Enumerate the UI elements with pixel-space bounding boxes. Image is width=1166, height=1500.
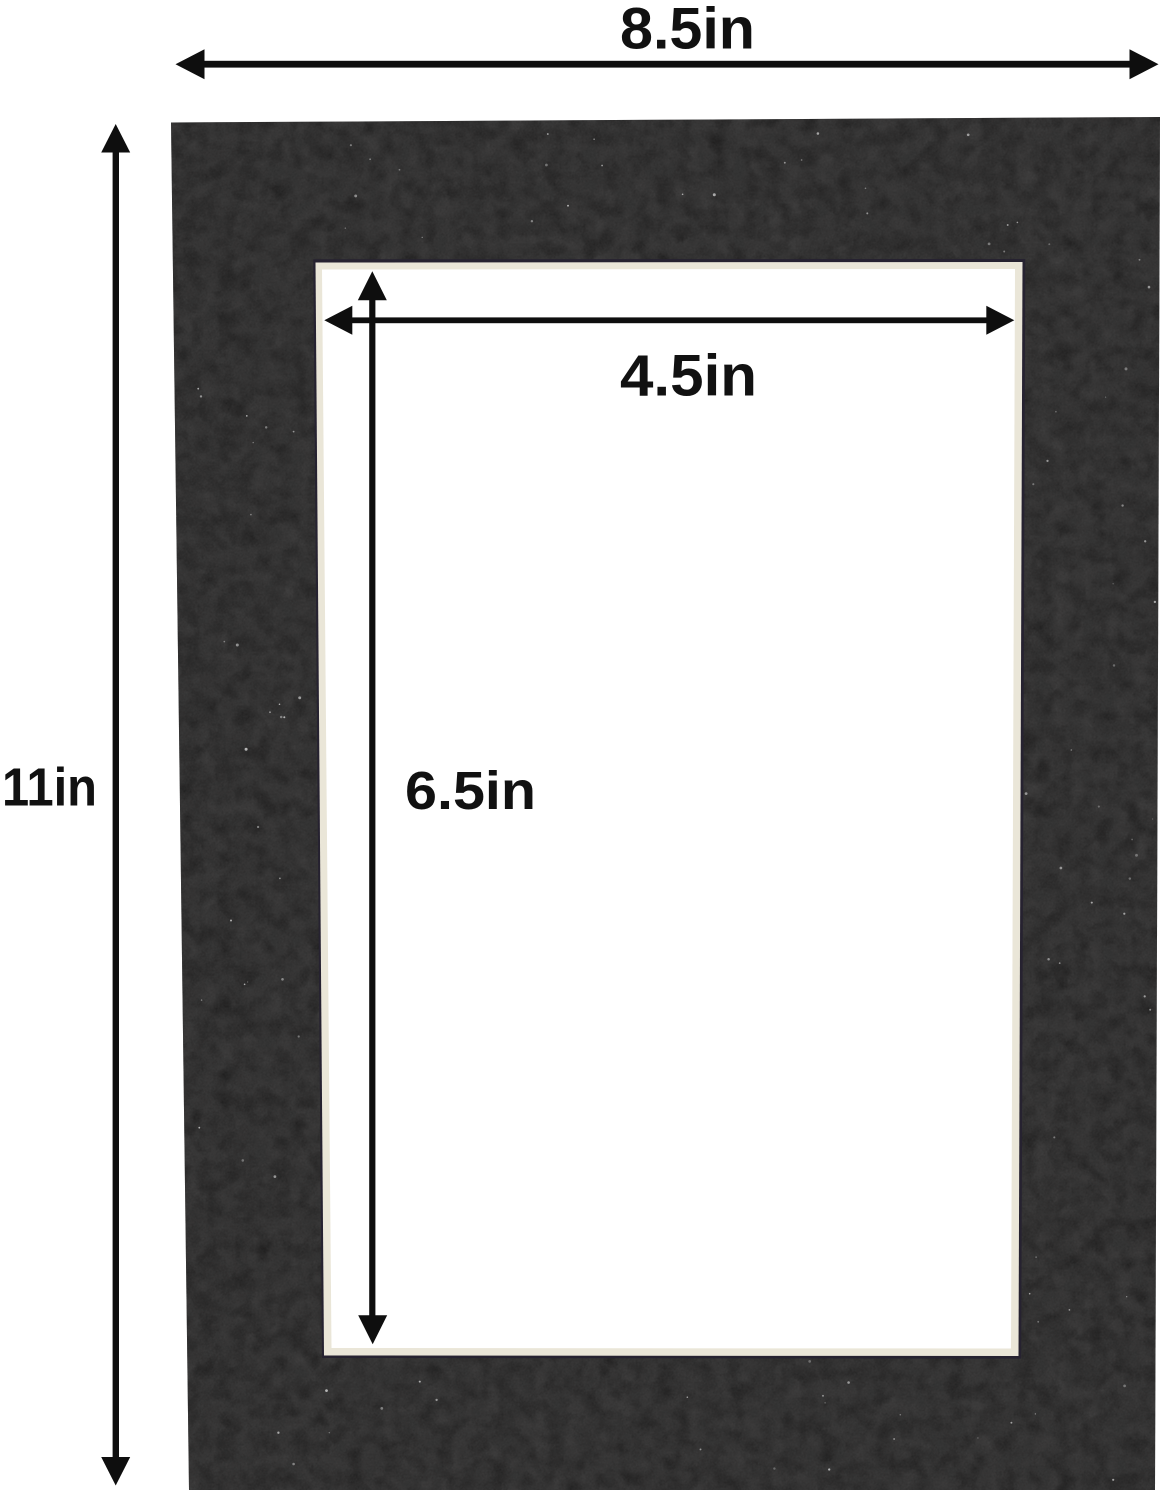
- svg-text:8.5in: 8.5in: [620, 0, 755, 62]
- svg-text:4.5in: 4.5in: [620, 344, 757, 409]
- svg-text:11in: 11in: [2, 758, 97, 818]
- svg-text:6.5in: 6.5in: [405, 761, 536, 821]
